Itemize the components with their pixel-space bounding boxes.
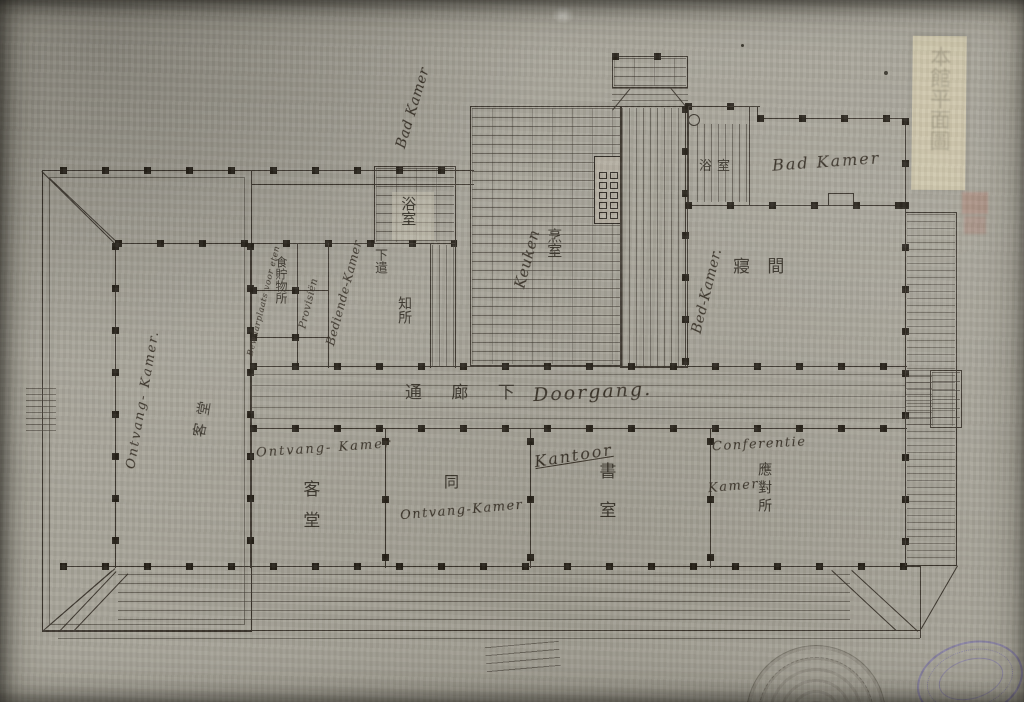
stove-burner: [599, 212, 607, 219]
outer-boundary: [920, 566, 921, 638]
veranda-miter: [921, 566, 958, 630]
scanned-floor-plan: Bad Kamer 浴室 Keuken 烹室 Bediende-Kamer 下遣…: [0, 0, 1024, 702]
label-bath-top: Bad Kamer: [388, 48, 438, 167]
stove-burner: [610, 172, 618, 179]
stove-burner: [599, 172, 607, 179]
archive-slip-faded-calligraphy: 本館平面圖: [927, 46, 951, 190]
door-notch: [828, 193, 854, 205]
stove-burner: [610, 212, 618, 219]
label-conference-cjk: 應對所: [756, 462, 771, 516]
outer-boundary: [58, 638, 920, 639]
bottom-steps: [485, 641, 561, 677]
red-seal: [962, 192, 988, 214]
post-row: [707, 438, 714, 568]
side-steps: [26, 388, 56, 410]
wall: [430, 243, 431, 368]
label-servants-cjk: 知所: [396, 296, 411, 324]
red-seal: [964, 216, 986, 234]
label-storage-cjk: 食貯物所: [274, 256, 287, 304]
post-row: [250, 334, 330, 341]
post-row: [382, 438, 389, 568]
label-bath-top-cjk: 浴室: [400, 196, 416, 226]
label-reception1-cjk: 客堂: [300, 480, 318, 542]
bottom-veranda-planks: [118, 574, 850, 628]
paper-bright-spot: [552, 6, 574, 24]
label-corridor-cjk: 通 廊 下: [405, 384, 527, 402]
label-servants-cjk: 下遣: [372, 248, 386, 274]
stove-burner: [610, 182, 618, 189]
label-conference-1: Conferentie: [712, 435, 807, 455]
post-row: [612, 53, 691, 60]
label-bedroom: Bed-Kamer.: [684, 226, 731, 356]
entry-steps: [612, 88, 688, 110]
label-reception2-ditto: 同: [444, 474, 459, 490]
stove-burner: [610, 202, 618, 209]
passage-floor-hatch: [432, 245, 455, 366]
kitchen-stove: [594, 156, 621, 224]
bath-drain: [688, 114, 700, 126]
post-row: [250, 363, 907, 370]
post-row: [112, 243, 119, 568]
post-row: [757, 115, 907, 122]
post-row: [250, 425, 907, 432]
label-kitchen-cjk: 烹室: [546, 228, 562, 258]
label-office-cjk: 書室: [596, 462, 614, 540]
veranda-miter: [851, 570, 918, 632]
label-bath-right-cjk: 浴室: [699, 160, 735, 174]
post-row: [60, 563, 920, 570]
ink-speck: [884, 71, 888, 75]
ink-speck: [741, 44, 744, 47]
label-bath-right: Bad Kamer: [771, 148, 880, 175]
stove-burner: [610, 192, 618, 199]
bridge-planks: [905, 370, 932, 426]
label-conference-2: Kamer: [707, 477, 759, 496]
stove-burner: [599, 182, 607, 189]
post-row: [685, 202, 907, 209]
landing-brick: [932, 372, 960, 426]
stove-burner: [599, 192, 607, 199]
label-reception1: Ontvang- Kamer: [256, 436, 393, 460]
label-reception2: Ontvang-Kamer: [400, 498, 524, 524]
side-steps: [26, 412, 56, 434]
stair-corridor-floor: [622, 108, 686, 366]
top-landing-brick: [614, 58, 686, 86]
archive-slip: 本館平面圖: [911, 36, 967, 191]
wall: [455, 243, 456, 368]
outer-boundary: [42, 630, 920, 631]
label-bedroom-cjk: 寢 間: [733, 258, 790, 276]
stove-burner: [599, 202, 607, 209]
